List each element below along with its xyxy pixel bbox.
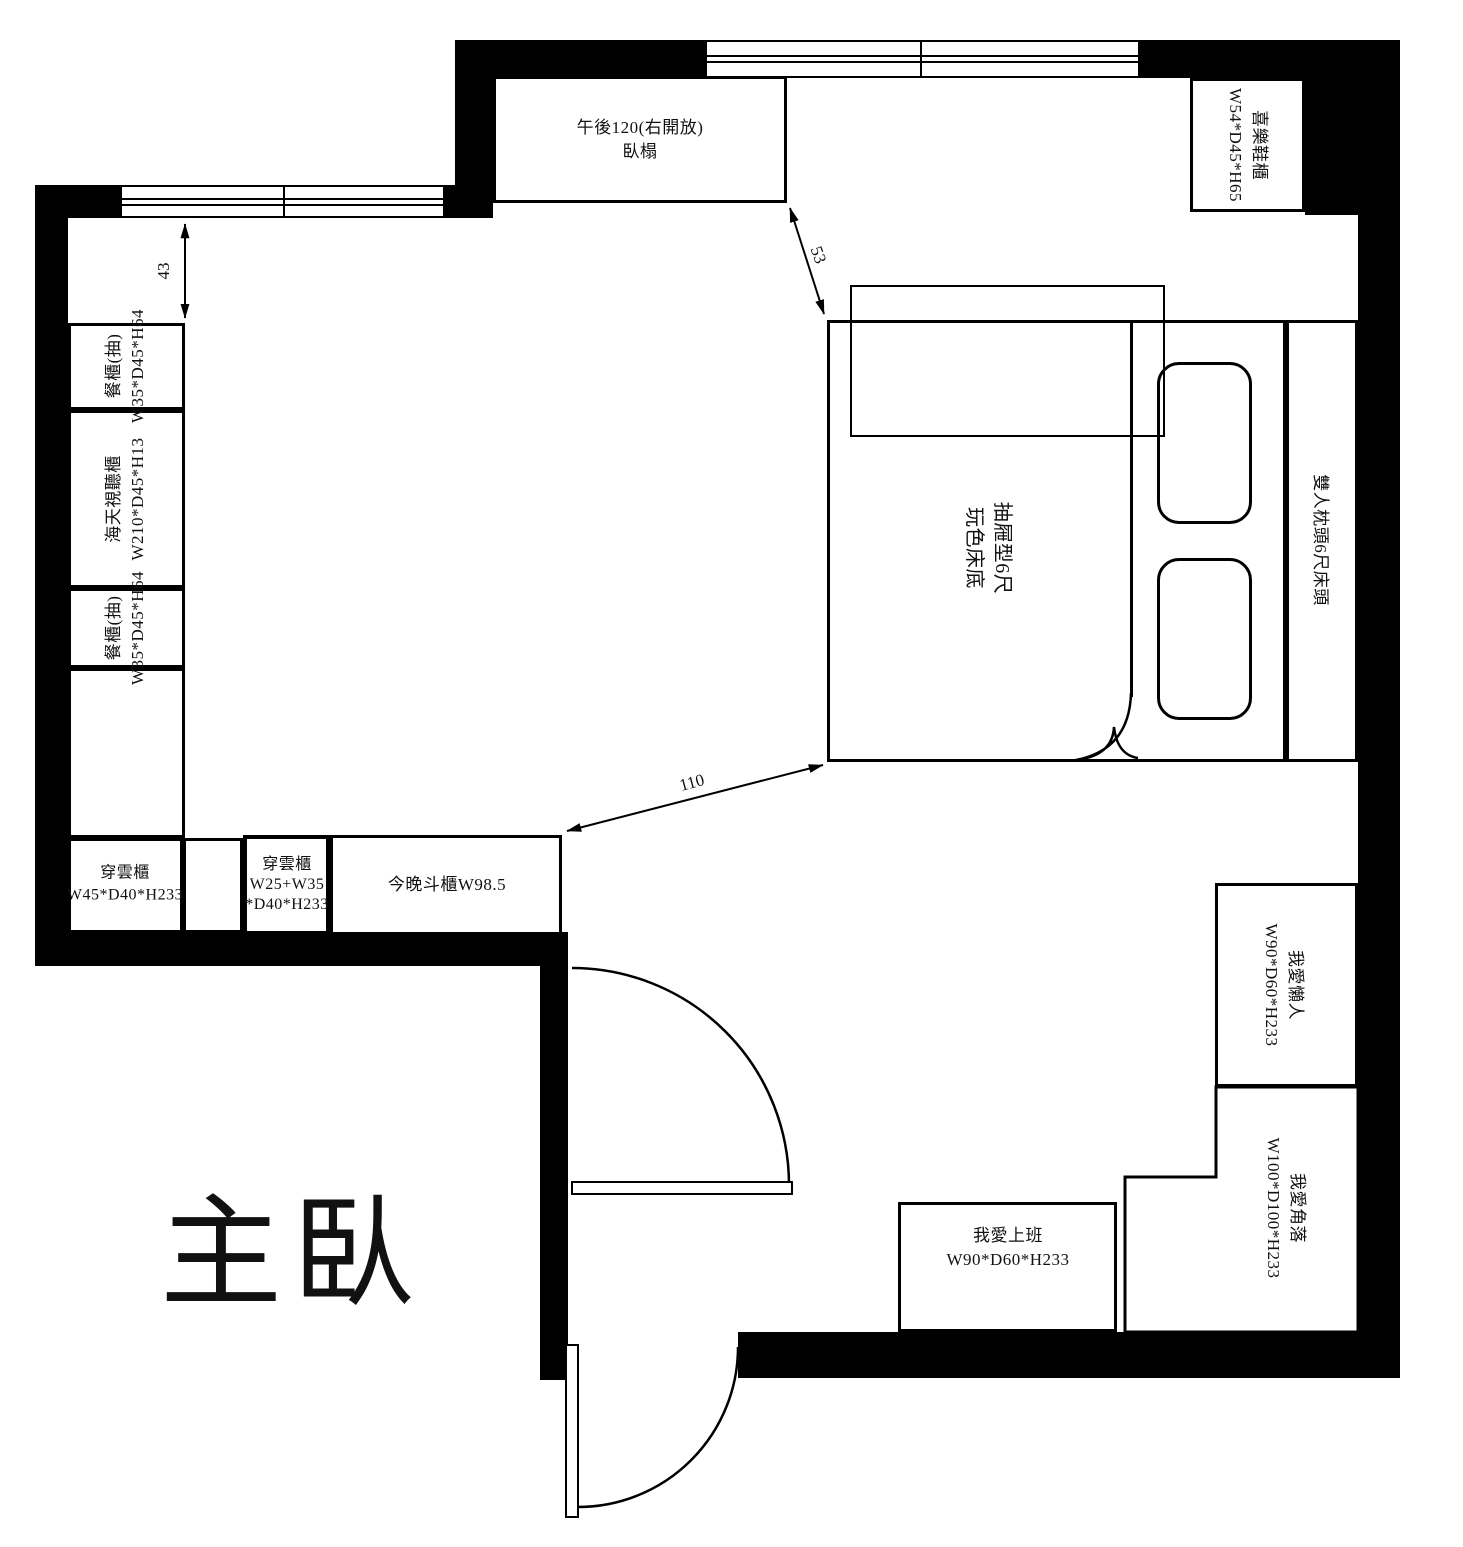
window-mullion: [920, 42, 922, 76]
bed-label-line2: 玩色床底: [960, 502, 988, 595]
daybed-label-line2: 臥榻: [577, 140, 704, 164]
overhead-beam-box: [850, 285, 1165, 437]
pillow-bottom: [1157, 558, 1252, 720]
pillow-top: [1157, 362, 1252, 524]
chest-name: 今晚斗櫃W98.5: [388, 873, 506, 897]
window-glass-line: [707, 55, 1138, 57]
desk-label: 我愛上班 W90*D60*H233: [946, 1224, 1069, 1272]
headboard-name: 雙人枕頭6尺床頭: [1308, 474, 1332, 606]
corner-unit-outline: [1125, 1087, 1358, 1332]
small-empty-box: [183, 838, 243, 933]
entry-door-swing-arc: [578, 1347, 738, 1507]
window-top: [705, 40, 1140, 78]
chest-label: 今晚斗櫃W98.5: [388, 873, 506, 897]
av-cabinet-name: 海天視聽櫃: [102, 437, 126, 560]
av-cabinet-label: 海天視聽櫃 W210*D45*H13: [102, 437, 150, 560]
wall-bottom: [738, 1332, 1400, 1378]
lazy-unit-label: 我愛懶人 W90*D60*H233: [1259, 923, 1307, 1046]
dimension-43-label: 43: [154, 263, 174, 280]
dining-cabinet-bottom-label: 餐櫃(抽) W35*D45*H64: [102, 571, 150, 685]
daybed-label-line1: 午後120(右開放): [577, 116, 704, 140]
wall-right: [1358, 40, 1400, 1378]
dimension-53-label: 53: [806, 244, 831, 267]
room-title: 主臥: [160, 1155, 424, 1332]
wardrobe-left-dims: W45*D40*H233: [67, 885, 183, 907]
left-empty-box: [68, 668, 185, 838]
window-left: [120, 185, 445, 218]
shoe-cabinet-name: 喜樂鞋櫃: [1247, 88, 1271, 202]
bed-label-line1: 抽屜型6尺: [988, 502, 1016, 595]
lazy-unit-name: 我愛懶人: [1283, 923, 1307, 1046]
window-glass-line: [707, 61, 1138, 63]
shoe-cabinet-label: 喜樂鞋櫃 W54*D45*H65: [1223, 88, 1271, 202]
wardrobe-left-name: 穿雲櫃: [67, 863, 183, 885]
headboard-label: 雙人枕頭6尺床頭: [1308, 474, 1332, 606]
dimension-110-label: 110: [677, 770, 706, 796]
wall-corner-top-right: [1305, 40, 1400, 215]
desk-name: 我愛上班: [946, 1224, 1069, 1248]
daybed-label: 午後120(右開放) 臥榻: [577, 116, 704, 164]
wardrobe-small-dims2: *D40*H233: [245, 895, 329, 915]
corner-unit-name: 我愛角落: [1285, 1137, 1309, 1278]
av-cabinet-dims: W210*D45*H13: [126, 437, 150, 560]
corner-unit-dims: W100*D100*H233: [1261, 1137, 1285, 1278]
wall-mid-vertical: [540, 932, 568, 1380]
floor-plan: 午後120(右開放) 臥榻 喜樂鞋櫃 W54*D45*H65 餐櫃(抽) W35…: [0, 0, 1463, 1547]
wall-bottom-left: [35, 932, 568, 966]
wall-left-vertical: [35, 185, 68, 966]
wardrobe-left-label: 穿雲櫃 W45*D40*H233: [67, 863, 183, 908]
dining-cabinet-top-label: 餐櫃(抽) W35*D45*H64: [102, 309, 150, 423]
window-mullion: [283, 187, 285, 216]
door-swing-arc: [572, 968, 789, 1185]
dining-cabinet-top-dims: W35*D45*H64: [126, 309, 150, 423]
shoe-cabinet-dims: W54*D45*H65: [1223, 88, 1247, 202]
lazy-unit-dims: W90*D60*H233: [1259, 923, 1283, 1046]
bed-label: 抽屜型6尺 玩色床底: [960, 502, 1016, 595]
wardrobe-small-label: 穿雲櫃 W25+W35 *D40*H233: [245, 855, 329, 915]
wardrobe-small-name: 穿雲櫃: [245, 855, 329, 875]
dining-cabinet-bottom-name: 餐櫃(抽): [102, 571, 126, 685]
dining-cabinet-top-name: 餐櫃(抽): [102, 309, 126, 423]
desk-dims: W90*D60*H233: [946, 1248, 1069, 1272]
dining-cabinet-bottom-dims: W35*D45*H64: [126, 571, 150, 685]
wardrobe-small-dims1: W25+W35: [245, 875, 329, 895]
corner-unit-label: 我愛角落 W100*D100*H233: [1261, 1137, 1309, 1278]
door-leaf: [572, 1182, 792, 1194]
